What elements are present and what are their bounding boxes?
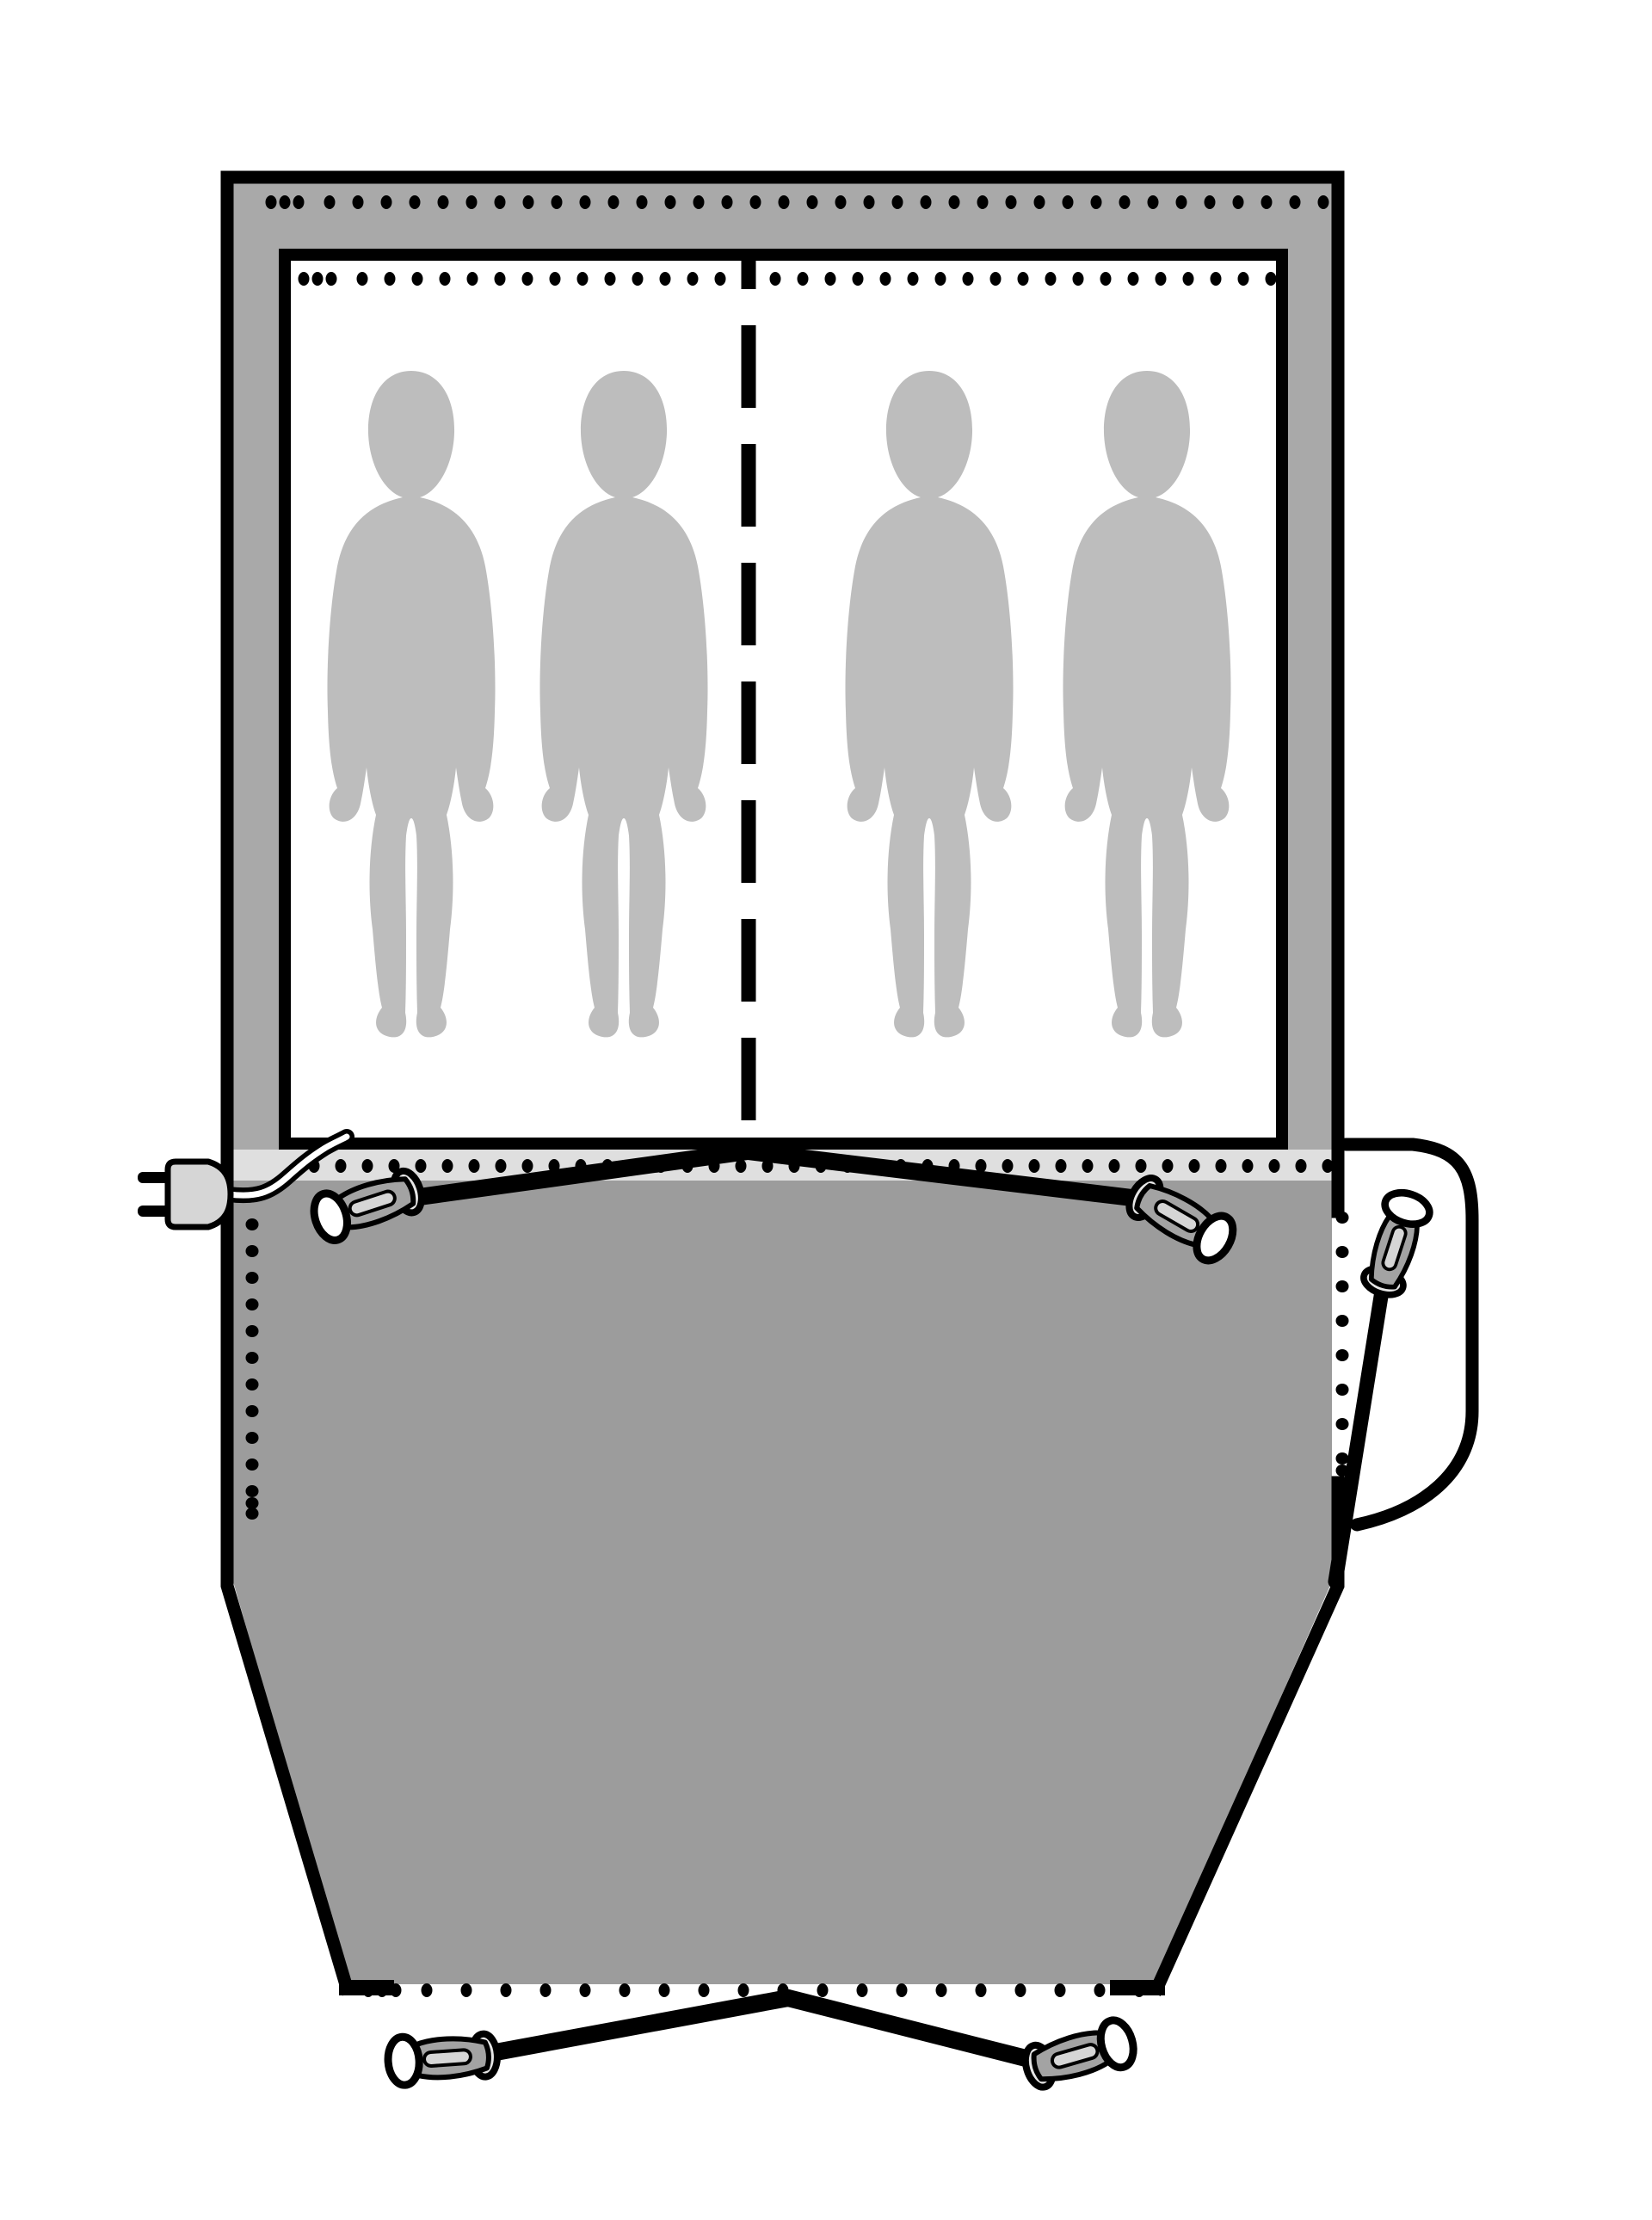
- stitch-dot: [1045, 272, 1057, 286]
- stitch-dot: [442, 1159, 453, 1173]
- stitch-dot: [1336, 1280, 1349, 1292]
- stitch-dot: [495, 272, 506, 286]
- stitch-dot: [1336, 1452, 1349, 1465]
- stitch-dot: [246, 1485, 259, 1497]
- ground-left-peg-icon: [386, 2031, 499, 2087]
- stitch-dot: [1056, 1159, 1067, 1173]
- stitch-dot: [1211, 272, 1222, 286]
- guy-line-ground-left: [482, 1998, 788, 2055]
- stitch-dot: [353, 195, 364, 209]
- stitch-dot: [619, 1983, 631, 1997]
- stitch-dot: [246, 1298, 259, 1310]
- stitch-dots-ground-bottom-row: [363, 1983, 1145, 1997]
- ground-right-peg-icon: [1020, 2016, 1139, 2093]
- stitch-dot: [501, 1983, 512, 1997]
- stitch-dot: [936, 1983, 947, 1997]
- stitch-dot: [540, 1983, 552, 1997]
- stitch-dot: [422, 1983, 433, 1997]
- stitch-dot: [1006, 195, 1017, 209]
- stitch-dot: [246, 1458, 259, 1471]
- stitch-dot: [336, 1159, 347, 1173]
- stitch-dot: [807, 195, 818, 209]
- stitch-dot: [495, 195, 506, 209]
- stitch-dot: [693, 195, 705, 209]
- stitch-dot: [1100, 272, 1112, 286]
- stitch-dot: [1336, 1212, 1349, 1224]
- stitch-dot: [293, 195, 305, 209]
- stitch-dot: [687, 272, 699, 286]
- stitch-dot: [391, 1983, 402, 1997]
- stitch-dot: [1029, 1159, 1040, 1173]
- stitch-dot: [246, 1497, 259, 1509]
- stitch-dot: [1290, 195, 1301, 209]
- stitch-dot: [410, 195, 421, 209]
- stitch-dot: [897, 1983, 908, 1997]
- stitch-dot: [357, 272, 368, 286]
- stitch-dot: [1216, 1159, 1227, 1173]
- stitch-dot: [857, 1983, 868, 1997]
- stitch-dot: [1261, 195, 1273, 209]
- stitch-dot: [466, 195, 478, 209]
- stitch-dot: [1018, 272, 1029, 286]
- stitch-dot: [1055, 1983, 1066, 1997]
- stitch-dot: [1296, 1159, 1307, 1173]
- stitch-dot: [246, 1272, 259, 1284]
- stitch-dot: [1205, 195, 1216, 209]
- plug-body: [168, 1162, 231, 1227]
- stitch-dot: [1156, 272, 1167, 286]
- stitch-dot: [817, 1983, 829, 1997]
- tent-floorplan-page: [0, 0, 1652, 2220]
- stitch-dot: [1136, 1159, 1147, 1173]
- stitch-dot: [1266, 272, 1277, 286]
- stitch-dot: [1134, 1983, 1145, 1997]
- stitch-dot: [246, 1432, 259, 1444]
- stitch-dot: [738, 1983, 749, 1997]
- stitch-dot: [522, 272, 533, 286]
- stitch-dot: [825, 272, 836, 286]
- stitch-dot: [266, 195, 277, 209]
- stitch-dot: [1336, 1246, 1349, 1258]
- stitch-dot: [935, 272, 946, 286]
- stitch-dot: [469, 1159, 480, 1173]
- stitch-dot: [864, 195, 875, 209]
- tent-floorplan-diagram: [0, 0, 1652, 2220]
- stitch-dot: [246, 1325, 259, 1337]
- stitch-dot: [416, 1159, 427, 1173]
- stitch-dot: [660, 272, 671, 286]
- stitch-dot: [461, 1983, 472, 1997]
- stitch-dot: [608, 195, 619, 209]
- stitch-dot: [577, 272, 589, 286]
- stitch-dot: [963, 272, 974, 286]
- stitch-dot: [1176, 195, 1187, 209]
- stitch-dot: [280, 195, 291, 209]
- stitch-dot: [1336, 1418, 1349, 1430]
- stitch-dot: [1322, 1159, 1334, 1173]
- stitch-dot: [1119, 195, 1131, 209]
- stitch-dot: [440, 272, 451, 286]
- stitch-dot: [921, 195, 932, 209]
- stitch-dots-right-side-column: [1336, 1212, 1349, 1489]
- stitch-dot: [246, 1352, 259, 1364]
- stitch-dot: [1082, 1159, 1094, 1173]
- stitch-dot: [1336, 1349, 1349, 1361]
- stitch-dot: [1336, 1384, 1349, 1396]
- stitch-dot: [665, 195, 676, 209]
- stitch-dot: [550, 272, 561, 286]
- stitch-dot: [659, 1983, 670, 1997]
- stitch-dot: [246, 1508, 259, 1520]
- stitch-dot: [1183, 272, 1194, 286]
- stitch-dot: [381, 195, 392, 209]
- stitch-dot: [779, 195, 790, 209]
- stitch-dot: [363, 1983, 374, 1997]
- stitch-dot: [299, 272, 310, 286]
- stitch-dot: [1094, 1983, 1106, 1997]
- stitch-dot: [908, 272, 919, 286]
- stitch-dot: [1148, 195, 1159, 209]
- stitch-dot: [1336, 1315, 1349, 1327]
- stitch-dot: [522, 1159, 533, 1173]
- stitch-dot: [632, 272, 644, 286]
- stitch-dot: [605, 272, 616, 286]
- stitch-dot: [976, 1983, 987, 1997]
- stitch-dot: [385, 272, 396, 286]
- stitch-dot: [798, 272, 809, 286]
- stitch-dot: [580, 1983, 591, 1997]
- stitch-dot: [699, 1983, 710, 1997]
- stitch-dot: [722, 195, 733, 209]
- stitch-dot: [246, 1218, 259, 1230]
- stitch-dot: [1269, 1159, 1280, 1173]
- stitch-dot: [523, 195, 534, 209]
- stitch-dot: [880, 272, 891, 286]
- stitch-dot: [1002, 1159, 1014, 1173]
- stitch-dot: [312, 272, 324, 286]
- stitch-dot: [750, 195, 761, 209]
- stitch-dot: [467, 272, 478, 286]
- stitch-dot: [1233, 195, 1244, 209]
- stitch-dot: [1063, 195, 1074, 209]
- stitch-dot: [715, 272, 726, 286]
- stitch-dot: [637, 195, 648, 209]
- stitch-dot: [1073, 272, 1084, 286]
- stitch-dot: [1318, 195, 1329, 209]
- stitch-dot: [853, 272, 864, 286]
- stitch-dot: [1091, 195, 1102, 209]
- stitch-dot: [977, 195, 989, 209]
- stitch-dot: [246, 1405, 259, 1417]
- stitch-dot: [770, 272, 781, 286]
- stitch-dot: [1189, 1159, 1200, 1173]
- stitch-dot: [580, 195, 591, 209]
- stitch-dot: [246, 1245, 259, 1257]
- inner-sleeping-cabin: [285, 255, 1282, 1150]
- power-plug-icon: [138, 1162, 231, 1227]
- stitch-dot: [1034, 195, 1045, 209]
- stitch-dot: [1109, 1159, 1120, 1173]
- stitch-dot: [324, 195, 336, 209]
- stitch-dot: [949, 195, 960, 209]
- stitch-dot: [496, 1159, 507, 1173]
- stitch-dot: [362, 1159, 373, 1173]
- stitch-dot: [835, 195, 847, 209]
- guy-line-ground-right: [788, 1998, 1039, 2062]
- stitch-dot: [1015, 1983, 1026, 1997]
- stitch-dot: [412, 272, 423, 286]
- door-side-peg-icon: [1358, 1187, 1433, 1300]
- stitch-dot: [1242, 1159, 1254, 1173]
- stitch-dot: [246, 1378, 259, 1391]
- stitch-dot: [990, 272, 1002, 286]
- stitch-dot: [1128, 272, 1139, 286]
- stitch-dot: [438, 195, 449, 209]
- vestibule-groundsheet: [233, 1153, 1332, 1984]
- stitch-dot: [552, 195, 563, 209]
- stitch-dot: [892, 195, 903, 209]
- stitch-dot: [377, 1983, 388, 1997]
- stitch-dot: [326, 272, 337, 286]
- stitch-dot: [1238, 272, 1249, 286]
- stitch-dot: [1162, 1159, 1174, 1173]
